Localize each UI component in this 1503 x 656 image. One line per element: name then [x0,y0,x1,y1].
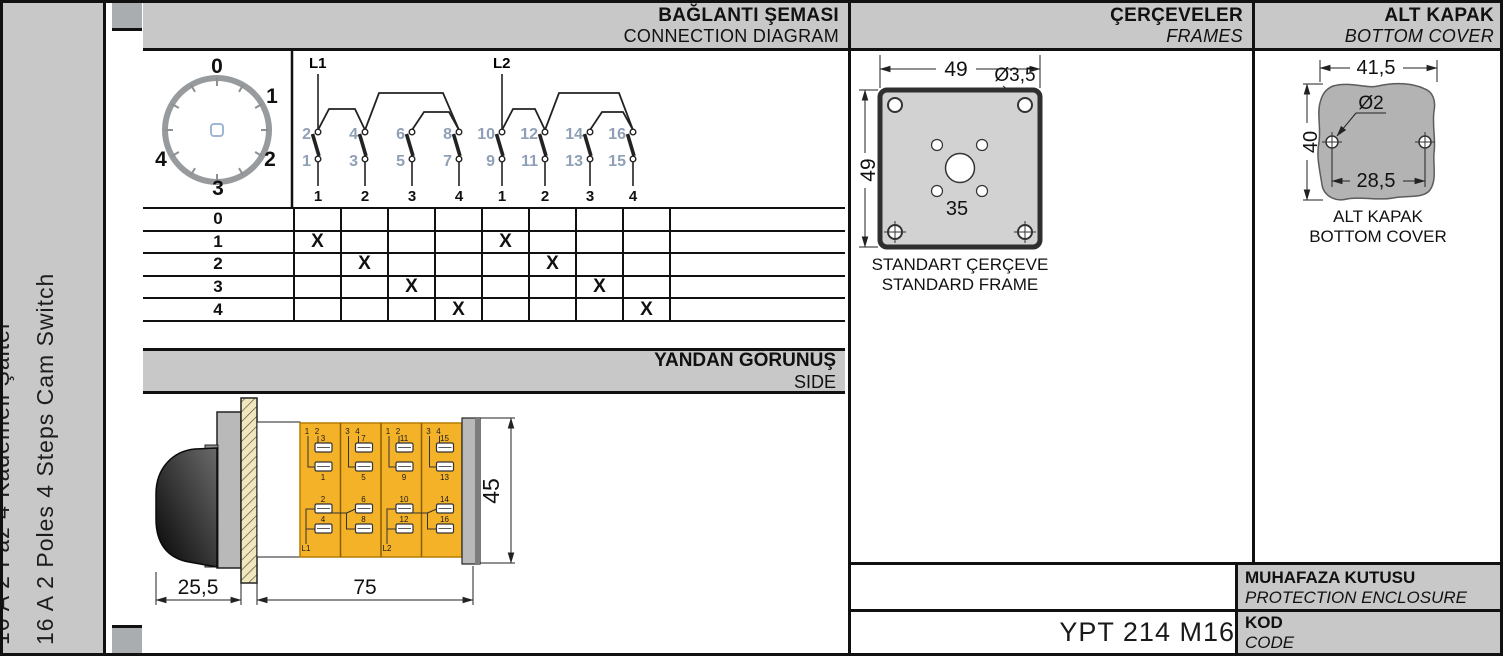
output-number: 1 [314,188,322,205]
dial-label: 4 [155,148,167,171]
step-label: 0 [143,209,295,230]
step-mark [295,277,342,298]
table-spacer [671,254,845,275]
jumper-wires [318,93,459,130]
step-mark [577,232,624,253]
code-cell: KOD CODE [1235,612,1503,653]
terminal-number: 8 [361,515,366,524]
enclosure-label-en: PROTECTION ENCLOSURE [1245,588,1503,607]
terminal-number: 7 [443,153,452,170]
step-mark [577,299,624,320]
terminal-number: 12 [400,515,409,524]
step-label: 1 [143,232,295,253]
step-mark: X [483,232,530,253]
enclosure-label-tr: MUHAFAZA KUTUSU [1245,568,1503,588]
terminal-number: 14 [565,126,583,143]
code-label-tr: KOD [1245,613,1503,633]
step-mark [624,232,671,253]
bottom-cover-section: ALT KAPAK BOTTOM COVER 41,5 [1255,3,1503,653]
step-mark [295,254,342,275]
step-mark [483,209,530,230]
output-number: 4 [455,188,464,205]
terminal-number: 15 [440,434,449,443]
dial-label: 2 [264,148,276,171]
lead-number: 3 [345,427,350,436]
terminal-number: 1 [321,473,326,482]
frame-caption-tr: STANDART ÇERÇEVE [872,255,1049,274]
terminal-number: 14 [440,495,449,504]
step-mark: X [295,232,342,253]
step-mark [389,299,436,320]
side-view-header: YANDAN GÖRÜNÜŞ SIDE [143,348,845,394]
step-mark [624,277,671,298]
step-mark [389,232,436,253]
dim-body-length: 75 [353,576,376,599]
step-mark: X [436,299,483,320]
terminal-number: 2 [302,126,311,143]
frames-title-tr: ÇERÇEVELER [1110,5,1243,26]
terminal-number: 8 [443,126,452,143]
step-mark [577,209,624,230]
dim-frame-height: 49 [857,158,880,181]
connection-title-tr: BAĞLANTI ŞEMASI [658,5,839,26]
step-mark [530,209,577,230]
output-number: 2 [541,188,549,205]
lead-number: 4 [355,427,360,436]
dim-corner-hole: Ø3,5 [994,65,1035,86]
table-row: 1 X X [143,232,845,255]
terminal-number: 6 [396,126,405,143]
terminal-number: 13 [565,153,583,170]
terminal-number: 2 [321,495,326,504]
product-title-english: 16 A 2 Poles 4 Steps Cam Switch [32,273,59,645]
step-mark: X [389,277,436,298]
lead-number: 1 [305,427,310,436]
dim-cover-width: 41,5 [1357,57,1396,79]
side-title-tr: YANDAN GÖRÜNÜŞ [654,350,836,372]
side-view-drawing: 1 2 3 1 2 4 L1 3 4 [143,391,845,650]
frames-header: ÇERÇEVELER FRAMES [851,3,1252,51]
terminal-number: 13 [440,473,449,482]
terminal-number: 16 [608,126,626,143]
step-mark [295,209,342,230]
step-mark [342,209,389,230]
dial-shaft-icon [211,124,223,136]
step-mark: X [577,277,624,298]
dim-body-height: 45 [478,478,504,504]
step-mark [483,277,530,298]
step-mark [436,209,483,230]
dim-hole-span: 28,5 [1357,170,1396,192]
dim-cover-height: 40 [1300,131,1322,153]
terminal-number: 5 [361,473,366,482]
panel-hatch [241,398,257,583]
selector-dial: 0 1 2 3 4 [155,55,278,200]
feed-label: L2 [493,55,511,72]
dial-label: 0 [211,55,223,78]
feed-label: L2 [383,544,392,553]
mounting-plate [217,412,241,568]
terminal-number: 1 [302,153,311,170]
step-label: 2 [143,254,295,275]
bottom-cover-drawing: 41,5 40 Ø2 28,5 ALT KAPAK BOTTOM COVER [1255,48,1500,308]
switching-table: 0 1 X X [143,207,845,322]
catalog-page: 16 A 2 Faz 4 Kademeli Şalter 16 A 2 Pole… [0,0,1503,656]
step-mark [342,232,389,253]
step-mark [436,254,483,275]
terminal-number: 5 [396,153,405,170]
terminal-number: 4 [321,515,326,524]
table-row: 4 X X [143,299,845,322]
terminal-number: 11 [521,153,538,170]
step-mark [530,299,577,320]
connection-header: BAĞLANTI ŞEMASI CONNECTION DIAGRAM [143,3,848,51]
step-mark [389,254,436,275]
terminal-number: 10 [477,126,495,143]
handle-knob [156,448,217,567]
dim-frame-width: 49 [944,58,967,81]
step-mark [342,299,389,320]
bottom-cover-title-tr: ALT KAPAK [1384,5,1494,26]
terminal-number: 6 [361,495,366,504]
terminal-number: 10 [400,495,409,504]
step-mark [577,254,624,275]
step-mark [436,232,483,253]
step-mark [530,277,577,298]
step-mark: X [624,299,671,320]
step-mark [342,277,389,298]
table-spacer [671,209,845,230]
dim-center-span: 35 [946,198,968,220]
terminal-number: 9 [486,153,495,170]
connection-section: BAĞLANTI ŞEMASI CONNECTION DIAGRAM [143,3,851,653]
step-mark [530,232,577,253]
frame-drawing: 49 Ø3,5 49 35 STANDART ÇERÇEVE STANDARD … [851,48,1249,358]
connection-title-en: CONNECTION DIAGRAM [624,26,839,46]
step-label: 4 [143,299,295,320]
step-label: 3 [143,277,295,298]
center-hole [946,154,975,183]
contact-group-l2: L2 10 12 14 16 9 11 13 15 [477,55,638,205]
spine-strip [106,3,146,653]
frame-caption-en: STANDARD FRAME [882,275,1038,294]
step-mark [295,299,342,320]
lead-number: 1 [386,427,391,436]
output-number: 3 [586,188,594,205]
product-title-turkish: 16 A 2 Faz 4 Kademeli Şalter [0,320,15,645]
shaft-housing [257,422,300,557]
dim-hole-dia: Ø2 [1358,93,1383,114]
frames-title-en: FRAMES [1166,26,1243,46]
side-title-en: SIDE [794,372,836,393]
dim-knob-depth: 25,5 [178,576,219,599]
output-number: 2 [361,188,369,205]
sidebar: 16 A 2 Faz 4 Kademeli Şalter 16 A 2 Pole… [3,3,106,653]
frames-section: ÇERÇEVELER FRAMES [851,3,1255,653]
product-code: YPT 214 M16 [851,612,1245,653]
table-spacer [671,232,845,253]
step-mark: X [530,254,577,275]
lead-number: 3 [426,427,431,436]
contact-group-l1: L1 2 4 6 8 1 3 5 7 [302,55,464,205]
terminal-number: 3 [349,153,358,170]
table-spacer [671,277,845,298]
feed-label: L1 [302,544,311,553]
step-mark: X [342,254,389,275]
spine-square-bottom [112,625,142,653]
terminal-number: 15 [608,153,626,170]
connection-schematic: 0 1 2 3 4 L1 [143,49,845,207]
step-mark [483,254,530,275]
output-number: 1 [498,188,506,205]
spine-square-top [112,3,142,31]
step-mark [436,277,483,298]
terminal-number: 9 [402,473,407,482]
cover-caption-tr: ALT KAPAK [1333,207,1423,226]
bottom-cover-title-en: BOTTOM COVER [1345,26,1494,46]
jumper-wires [502,93,633,130]
step-mark [624,209,671,230]
terminal-number: 11 [400,434,409,443]
terminal-number: 7 [361,434,366,443]
step-mark [389,209,436,230]
lead-number: 2 [315,427,320,436]
table-row: 2 X X [143,254,845,277]
terminal-number: 16 [440,515,449,524]
feed-label: L1 [309,55,327,72]
terminal-number: 12 [520,126,538,143]
dial-label: 3 [212,177,224,200]
step-mark [483,299,530,320]
output-number: 4 [629,188,638,205]
table-row: 3 X X [143,277,845,300]
output-number: 3 [408,188,416,205]
terminal-number: 3 [321,434,326,443]
bottom-cover-header: ALT KAPAK BOTTOM COVER [1255,3,1503,51]
code-label-en: CODE [1245,633,1503,652]
enclosure-cell: MUHAFAZA KUTUSU PROTECTION ENCLOSURE [1235,565,1503,609]
table-spacer [671,299,845,320]
dial-label: 1 [266,85,278,108]
cover-caption-en: BOTTOM COVER [1309,227,1447,246]
terminal-number: 4 [349,126,358,143]
table-row: 0 [143,209,845,232]
step-mark [624,254,671,275]
